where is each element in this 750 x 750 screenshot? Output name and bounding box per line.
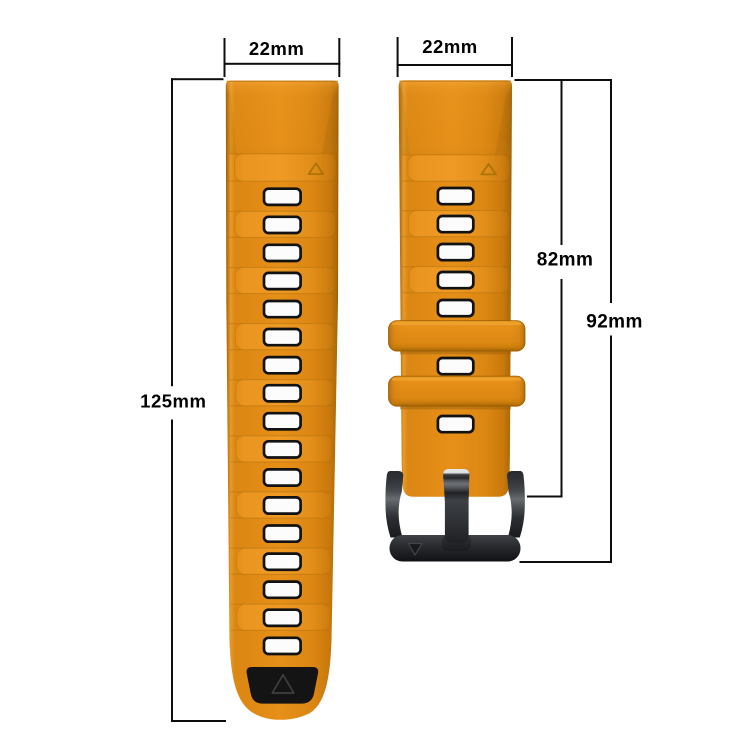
svg-text:22mm: 22mm <box>422 36 477 57</box>
svg-text:82mm: 82mm <box>537 250 594 271</box>
svg-text:22mm: 22mm <box>249 38 304 59</box>
svg-text:92mm: 92mm <box>586 312 643 333</box>
svg-text:125mm: 125mm <box>140 391 206 412</box>
